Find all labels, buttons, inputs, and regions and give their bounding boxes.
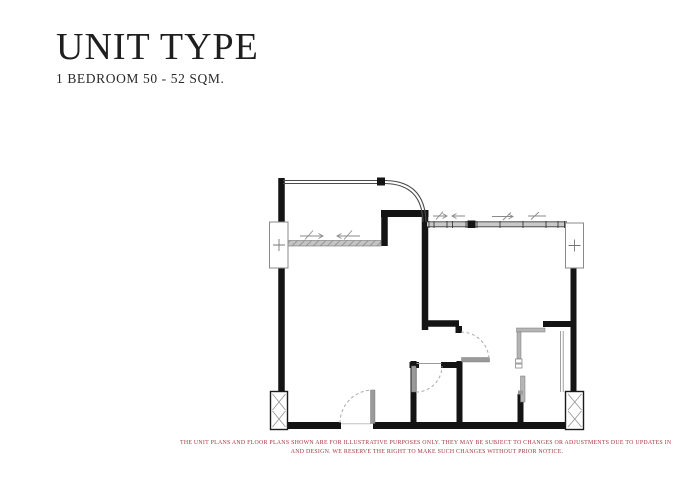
shaft-bottom-right bbox=[566, 392, 584, 430]
window-opening-marks bbox=[433, 212, 546, 221]
window-wall bbox=[427, 212, 567, 229]
panel-cap bbox=[518, 391, 523, 395]
panel-hinge bbox=[516, 364, 523, 368]
door-leaf bbox=[412, 366, 417, 392]
bathroom-door bbox=[412, 364, 443, 393]
folding-panel-left bbox=[517, 332, 521, 359]
floor-plan bbox=[0, 0, 673, 500]
column-right bbox=[566, 223, 584, 268]
disclaimer: THE UNIT PLANS AND FLOOR PLANS SHOWN ARE… bbox=[180, 439, 673, 457]
railing-post bbox=[377, 178, 385, 186]
door-leaf bbox=[371, 390, 376, 424]
door-leaf bbox=[462, 358, 490, 363]
folding-panel-lower bbox=[521, 376, 526, 402]
disclaimer-line-2: AND DESIGN. WE RESERVE THE RIGHT TO MAKE… bbox=[180, 448, 673, 457]
bedroom-door bbox=[461, 332, 490, 362]
column-left bbox=[270, 222, 289, 268]
window-mullion bbox=[468, 221, 476, 229]
panel-hinge bbox=[516, 359, 523, 363]
sliding-door bbox=[288, 231, 381, 247]
door-swing-arc bbox=[416, 366, 442, 392]
folding-panel-top bbox=[517, 328, 546, 332]
disclaimer-line-1: THE UNIT PLANS AND FLOOR PLANS SHOWN ARE… bbox=[180, 439, 673, 448]
entrance-door bbox=[340, 390, 375, 424]
shaft-bottom-left bbox=[271, 392, 288, 430]
door-swing-arc bbox=[461, 332, 489, 360]
interior-walls bbox=[410, 210, 574, 424]
bathroom2-partition bbox=[516, 328, 564, 402]
slide-direction-marks bbox=[300, 231, 360, 240]
door-swing-arc bbox=[340, 390, 373, 423]
brochure-page: UNIT TYPE 1 BEDROOM 50 - 52 SQM. bbox=[0, 0, 673, 500]
glass-partition bbox=[561, 331, 564, 392]
